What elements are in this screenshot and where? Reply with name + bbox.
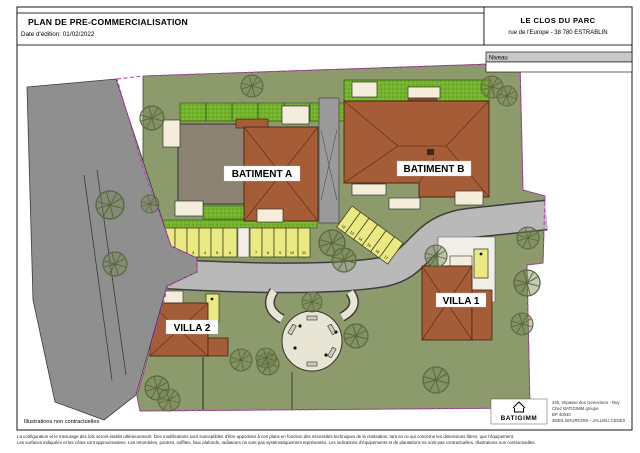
legal-note-1: La configuration et le mesurage des lots…: [17, 434, 514, 439]
tree-icon: [141, 195, 159, 213]
tree-icon: [96, 191, 124, 219]
parking-number: 4: [204, 251, 206, 255]
parking-number: 10: [290, 251, 294, 255]
villa-1-label: VILLA 1: [443, 296, 480, 307]
parking-row-2: 7 8 9 10 11: [250, 228, 310, 257]
publisher-logo: BATIGIMM: [501, 415, 538, 422]
tree-icon: [511, 313, 533, 335]
batiment-b-label: BATIMENT B: [404, 164, 465, 175]
batiment-a-label: BATIMENT A: [232, 169, 293, 180]
plan-document: 1 2 3 4 5 6 7 8 9 10 11: [0, 0, 640, 453]
tree-icon: [103, 252, 127, 276]
project-name: LE CLOS DU PARC: [520, 16, 595, 25]
publisher-address-3: BP 40040: [552, 412, 571, 417]
publisher-block: BATIGIMM 340, Impasse des Genevriers - R…: [491, 399, 625, 424]
tree-icon: [140, 106, 164, 130]
parking-number: 3: [192, 251, 194, 255]
parking-number: 11: [302, 251, 306, 255]
parking-number: 9: [279, 251, 281, 255]
publisher-address-4: 38301 BOURGOIN - JALLIEU CEDEX: [552, 418, 625, 423]
plan-title: PLAN DE PRE-COMMERCIALISATION: [28, 17, 188, 27]
flat-roof: [178, 124, 244, 204]
level-value-row: [486, 62, 632, 72]
walkway: [238, 228, 249, 257]
tree-icon: [230, 349, 252, 371]
site-plan-canvas: 1 2 3 4 5 6 7 8 9 10 11: [0, 0, 640, 453]
publisher-address-1: 340, Impasse des Genevriers - Ruy: [552, 400, 620, 405]
tree-icon: [497, 86, 517, 106]
roof-vent: [427, 149, 434, 155]
parking-number: 5: [216, 251, 218, 255]
tree-icon: [302, 292, 322, 312]
publisher-address-2: Chez BATIGIMM groupe: [552, 406, 599, 411]
site-plan: 1 2 3 4 5 6 7 8 9 10 11: [27, 63, 546, 420]
level-label: Niveau: [489, 56, 508, 62]
tree-icon: [332, 248, 356, 272]
level-header-bar: [486, 52, 632, 62]
project-address: rue de l'Europe - 38 780 ESTRABLIN: [508, 30, 607, 36]
parking-number: 7: [255, 251, 257, 255]
tree-icon: [344, 324, 368, 348]
tree-icon: [514, 270, 540, 296]
alley: [319, 98, 339, 223]
tree-icon: [256, 348, 276, 368]
villa-2-label: VILLA 2: [174, 323, 211, 334]
parking-number: 8: [267, 251, 269, 255]
tree-icon: [158, 389, 180, 411]
tree-icon: [425, 245, 447, 267]
project-box: [484, 7, 632, 45]
tree-icon: [423, 367, 449, 393]
legal-note-2: Les surfaces indiquées et les côtes sont…: [17, 440, 536, 445]
tree-icon: [517, 227, 539, 249]
edition-date: Date d'édition: 01/02/2022: [21, 31, 95, 38]
parking-number: 6: [229, 251, 231, 255]
hip-roof: [344, 101, 489, 197]
tree-icon: [241, 75, 263, 97]
illustrations-note: Illustrations non contractuelles: [24, 419, 99, 425]
